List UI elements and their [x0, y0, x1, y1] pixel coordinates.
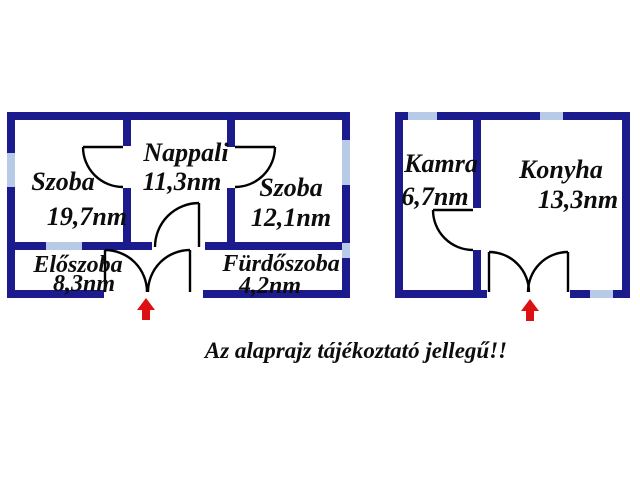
door-arc-nappali — [155, 203, 199, 247]
main-wall-right — [342, 112, 350, 298]
floorplan-svg: Szoba 19,7nm Nappali 11,3nm Szoba 12,1nm… — [0, 0, 640, 480]
annex-wall-bottom-mid — [570, 290, 590, 298]
annex-wall-right — [622, 112, 630, 298]
window-szoba1-left — [7, 153, 15, 187]
main-inner-wall-horizontal-left — [15, 242, 152, 250]
disclaimer-caption: Az alaprajz tájékoztató jellegű!! — [203, 338, 507, 363]
window-konyha-top — [540, 112, 563, 120]
entrance-door-right-arc-main — [148, 250, 190, 292]
main-inner-wall-horizontal-right — [205, 242, 342, 250]
room-area-furdoszoba: 4,2nm — [238, 273, 301, 299]
room-label-kamra: Kamra — [403, 149, 478, 178]
entrance-arrow-main — [137, 298, 155, 320]
window-eloszoba-inner — [46, 242, 82, 250]
entrance-arrow-annex — [521, 299, 539, 321]
main-inner-wall-szoba1-top — [123, 120, 131, 146]
main-wall-top — [7, 112, 350, 120]
annex-inner-wall-bottom — [473, 250, 481, 290]
main-inner-wall-szoba2-bottom — [227, 188, 235, 250]
room-area-nappali: 11,3nm — [143, 167, 222, 196]
room-area-szoba1: 19,7nm — [47, 202, 127, 231]
entrance-arrow-annex-stem — [526, 311, 534, 321]
annex-building: Kamra 6,7nm Konyha 13,3nm — [395, 112, 630, 321]
annex-wall-bottom-left — [395, 290, 487, 298]
window-furdoszoba-right — [342, 243, 350, 258]
window-szoba2-right — [342, 140, 350, 185]
entrance-arrow-main-stem — [142, 310, 150, 320]
window-kamra-top — [408, 112, 437, 120]
room-area-eloszoba: 8,3nm — [53, 271, 115, 297]
main-house: Szoba 19,7nm Nappali 11,3nm Szoba 12,1nm… — [7, 112, 350, 320]
room-area-szoba2: 12,1nm — [251, 203, 331, 232]
entrance-door-right-arc-annex — [528, 252, 568, 292]
entrance-arrow-annex-head — [521, 299, 539, 311]
entrance-arrow-main-head — [137, 298, 155, 310]
door-arc-kamra — [433, 210, 473, 250]
room-label-nappali: Nappali — [142, 138, 229, 167]
window-konyha-bottom — [590, 290, 613, 298]
room-label-konyha: Konyha — [518, 155, 603, 184]
room-label-szoba1: Szoba — [31, 167, 95, 196]
room-label-szoba2: Szoba — [259, 173, 323, 202]
entrance-door-left-arc-annex — [489, 252, 529, 292]
main-wall-left — [7, 112, 15, 298]
floorplan-image: Szoba 19,7nm Nappali 11,3nm Szoba 12,1nm… — [0, 0, 640, 480]
room-area-kamra: 6,7nm — [401, 182, 468, 211]
room-area-konyha: 13,3nm — [538, 185, 618, 214]
